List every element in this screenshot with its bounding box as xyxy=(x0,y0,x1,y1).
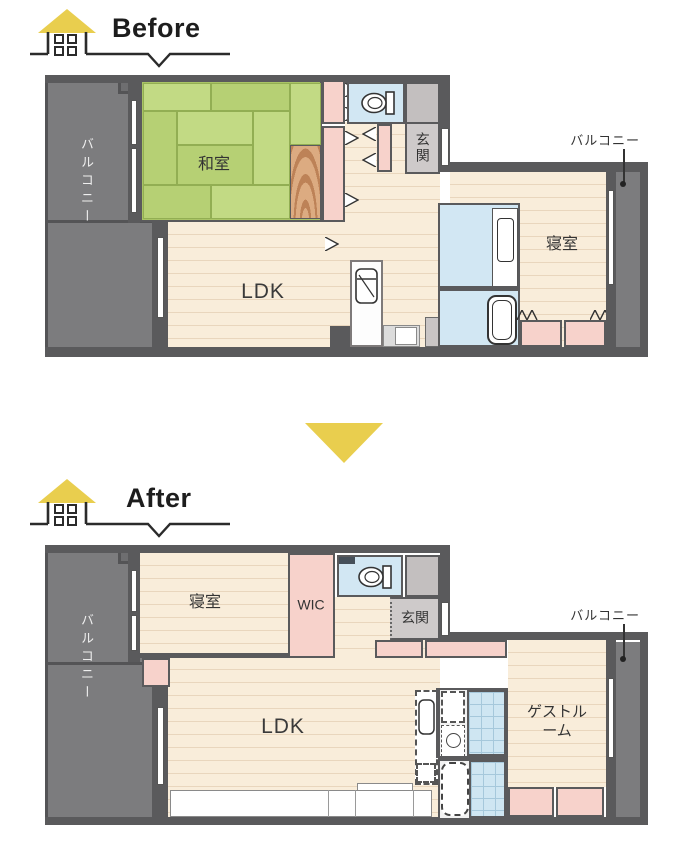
wall xyxy=(45,545,450,553)
genkan-label: 玄関 xyxy=(413,132,431,164)
wic-label: WIC xyxy=(297,596,324,614)
window-counter-row xyxy=(170,790,432,817)
pointer-line xyxy=(623,149,625,182)
kitchen-sink-icon xyxy=(354,267,380,305)
closet xyxy=(556,787,604,817)
window xyxy=(131,615,137,651)
closet xyxy=(375,640,423,658)
closet xyxy=(322,80,345,124)
balcony-left-label: バルコニー xyxy=(77,613,96,703)
header-underline xyxy=(86,524,230,536)
washing-machine-icon xyxy=(441,725,465,757)
window xyxy=(608,190,614,285)
window xyxy=(157,237,164,318)
balcony-right-label: バルコニー xyxy=(540,605,640,624)
tatami-mat xyxy=(177,111,253,145)
toilet-icon xyxy=(357,564,393,590)
wall xyxy=(330,326,352,348)
tatami-mat xyxy=(143,111,177,185)
closet xyxy=(564,320,606,347)
balcony-right xyxy=(616,642,640,817)
bathtub-icon xyxy=(487,295,517,345)
stove xyxy=(395,327,417,345)
divider xyxy=(328,790,329,817)
pointer-dot xyxy=(620,181,626,187)
bedroom-label: 寝室 xyxy=(546,235,578,255)
closet xyxy=(425,640,507,658)
bathtub-inner xyxy=(492,300,512,340)
window xyxy=(157,707,164,785)
closet xyxy=(142,658,170,687)
tokonoma-wood-floor xyxy=(290,145,321,219)
bathtub-icon xyxy=(441,762,469,816)
washitsu-label: 和室 xyxy=(198,155,230,175)
closet xyxy=(322,126,345,222)
divider xyxy=(355,790,356,817)
wall xyxy=(45,347,648,357)
balcony-left-lower xyxy=(45,220,168,355)
entrance-door xyxy=(441,602,449,636)
tatami-mat xyxy=(290,83,321,145)
divider xyxy=(413,790,414,817)
toilet-icon xyxy=(360,90,396,116)
door-swing-icon xyxy=(325,237,339,251)
washroom-tile xyxy=(467,690,506,756)
storage xyxy=(405,82,440,124)
door-swing-icon xyxy=(362,153,376,167)
after-title: After xyxy=(126,483,192,514)
bathroom-tile xyxy=(469,760,506,818)
balcony-right-label: バルコニー xyxy=(540,130,640,149)
pointer-line xyxy=(623,624,625,657)
wall xyxy=(45,817,648,825)
door-swing-icon xyxy=(345,193,359,207)
window xyxy=(131,570,137,612)
shoe-cabinet xyxy=(377,124,392,172)
kitchen-sink-icon xyxy=(417,698,437,736)
tatami-mat xyxy=(143,185,211,219)
dishwasher xyxy=(416,763,436,783)
guest-room-label: ゲストルーム xyxy=(525,703,589,741)
washlet-panel xyxy=(339,557,355,564)
balcony-right xyxy=(616,172,640,347)
balcony-left-label: バルコニー xyxy=(77,137,96,227)
window xyxy=(131,148,137,213)
header-underline xyxy=(86,54,230,66)
pointer-dot xyxy=(620,656,626,662)
door-swing-icon xyxy=(345,131,359,145)
folding-door-icon xyxy=(517,310,539,320)
window xyxy=(131,100,137,145)
wall xyxy=(640,162,648,357)
entrance-door xyxy=(441,128,449,166)
tatami-mat xyxy=(143,83,211,111)
closet xyxy=(508,787,554,817)
house-roof-icon xyxy=(38,479,96,503)
after-floor-plan: バルコニー LDK 寝室 WIC 玄関 xyxy=(45,545,648,825)
before-floor-plan: バルコニー LDK 和室 xyxy=(45,75,648,357)
tatami-mat xyxy=(253,111,290,185)
wall xyxy=(440,632,648,640)
ldk-label: LDK xyxy=(261,714,305,740)
bedroom-label: 寝室 xyxy=(189,593,221,613)
before-title: Before xyxy=(112,13,201,44)
tatami-mat xyxy=(211,185,290,219)
wall xyxy=(640,632,648,825)
wall xyxy=(438,286,520,291)
closet xyxy=(520,320,562,347)
house-roof-icon xyxy=(38,9,96,33)
window xyxy=(608,678,614,758)
door-swing-icon xyxy=(362,127,376,141)
wall xyxy=(440,162,648,172)
washer-drum xyxy=(446,733,461,748)
page: Before バルコニー LDK 和室 xyxy=(0,0,690,844)
down-arrow-icon xyxy=(305,423,383,463)
storage xyxy=(405,555,440,597)
washbasin-icon xyxy=(497,218,514,262)
ldk-label: LDK xyxy=(241,279,285,305)
tatami-mat xyxy=(211,83,290,111)
genkan-label: 玄関 xyxy=(401,609,429,627)
washbasin-icon xyxy=(441,691,465,723)
